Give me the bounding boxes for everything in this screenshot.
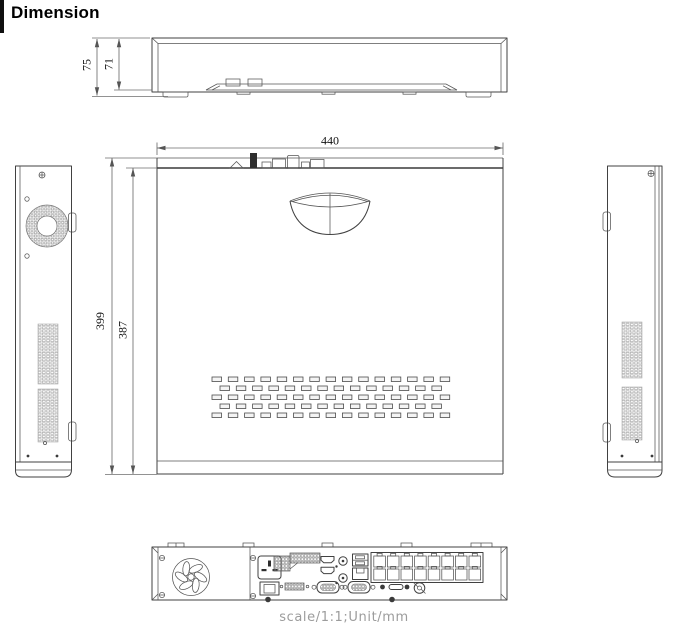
- rs232-terminal-block: [280, 583, 309, 590]
- dim-label-front-total-height: 75: [80, 59, 94, 71]
- side-mount-tab: [603, 212, 611, 231]
- alarm-terminal-blocks: [274, 553, 320, 571]
- screw-dot: [651, 455, 654, 458]
- vga-serial-port: [312, 582, 344, 594]
- dim-label-front-body-height: 71: [102, 58, 116, 70]
- chassis-screw: [389, 597, 395, 603]
- dim-label-top-total-depth: 399: [93, 312, 107, 330]
- screw-dot: [56, 455, 59, 458]
- screw-dot: [27, 455, 30, 458]
- side-foot: [16, 462, 72, 477]
- side-mount-tab: [69, 422, 77, 441]
- front-view: 75 71: [80, 38, 508, 97]
- dome-emboss: [290, 193, 370, 235]
- front-usb-ports: [226, 79, 262, 86]
- scale-note: scale/1:1;Unit/mm: [279, 610, 409, 625]
- audio-jacks: [335, 557, 347, 584]
- screw-icon: [159, 555, 255, 598]
- hdmi-ports: [321, 557, 334, 574]
- side-foot: [608, 462, 663, 477]
- side-vent-mesh: [38, 324, 58, 442]
- fan-grille-icon: [26, 205, 68, 247]
- lan-port: [353, 568, 369, 580]
- top-view: 440 399 387: [93, 134, 503, 475]
- ground-screw: [405, 585, 410, 590]
- screw-icon: [648, 171, 654, 177]
- dimension-drawing-page: Dimension: [0, 0, 679, 632]
- top-vent-holes: [212, 377, 450, 418]
- chassis-screw: [265, 597, 271, 603]
- top-dimensions: 440 399 387: [93, 134, 503, 475]
- dim-label-top-width: 440: [321, 134, 339, 148]
- rear-top-tabs: [168, 543, 492, 547]
- usb-ports: [353, 554, 369, 566]
- screw-hole: [25, 197, 29, 201]
- side-vent-mesh: [622, 322, 642, 440]
- poe-rj45-ports: [371, 553, 483, 583]
- dim-label-top-body-depth: 387: [116, 321, 130, 339]
- side-mount-tab: [603, 423, 611, 442]
- esata-port: [389, 585, 403, 590]
- power-switch: [260, 582, 279, 595]
- technical-drawing: 75 71: [0, 0, 679, 632]
- front-feet: [163, 92, 491, 97]
- left-side-view: [16, 166, 77, 477]
- screw-icon: [39, 172, 45, 178]
- rear-connectors-top: [230, 153, 324, 168]
- front-height-dimensions: 75 71: [80, 38, 169, 97]
- right-side-view: [603, 166, 662, 477]
- screw-dot: [621, 455, 624, 458]
- bnc-connector: [414, 583, 426, 594]
- front-groove: [206, 84, 457, 90]
- screw-hole: [25, 254, 29, 258]
- ground-screw: [380, 585, 385, 590]
- side-mount-tab: [69, 213, 77, 232]
- psu-fan-icon: [173, 559, 210, 596]
- vga-serial-port: [343, 582, 375, 594]
- rear-view: [152, 543, 507, 602]
